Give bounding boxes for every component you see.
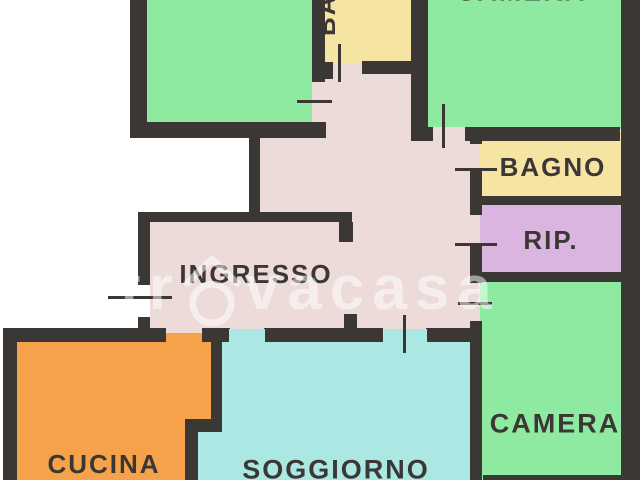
wall-segment bbox=[470, 128, 482, 144]
wall-segment bbox=[362, 61, 418, 74]
wall-segment bbox=[3, 328, 166, 342]
label-ingresso: INGRESSO bbox=[179, 261, 332, 287]
wall-segment bbox=[3, 328, 17, 480]
label-bagno-vertical: BAGNO bbox=[312, 0, 340, 36]
door-swing-line bbox=[297, 100, 332, 103]
door-swing-line bbox=[442, 104, 445, 148]
door-swing-line bbox=[458, 302, 492, 305]
wall-segment bbox=[470, 170, 482, 215]
wall-segment bbox=[470, 245, 482, 283]
wall-segment bbox=[482, 196, 621, 205]
floorplan: CAMERA BAGNO BAGNO RIP. INGRESSO CUCINA … bbox=[0, 0, 640, 480]
door-swing-line bbox=[455, 243, 497, 246]
wall-segment bbox=[419, 127, 433, 141]
room-soggiorno bbox=[196, 430, 226, 480]
wall-segment bbox=[211, 338, 222, 424]
label-camera-top: CAMERA bbox=[456, 0, 587, 6]
door-swing-line bbox=[403, 315, 406, 353]
wall-segment bbox=[465, 127, 620, 141]
door-opening bbox=[433, 127, 465, 141]
wall-segment bbox=[470, 321, 482, 480]
wall-segment bbox=[130, 0, 147, 138]
wall-segment bbox=[482, 272, 621, 282]
wall-segment bbox=[339, 222, 353, 242]
wall-segment bbox=[185, 419, 222, 432]
wall-segment bbox=[483, 475, 621, 480]
door-swing-line bbox=[455, 168, 497, 171]
wall-segment-outer-right bbox=[621, 0, 640, 480]
wall-segment bbox=[138, 212, 150, 285]
wall-segment bbox=[185, 432, 198, 480]
wall-segment bbox=[138, 212, 352, 222]
label-cucina: CUCINA bbox=[47, 451, 160, 477]
room-camera-bottom bbox=[480, 278, 623, 480]
label-rip: RIP. bbox=[523, 227, 578, 253]
wall-segment bbox=[130, 122, 326, 138]
wall-segment bbox=[411, 0, 428, 141]
room-camera-top bbox=[426, 0, 623, 130]
wall-segment bbox=[344, 314, 357, 330]
label-bagno: BAGNO bbox=[500, 154, 607, 180]
room-camera-top-left bbox=[145, 0, 315, 125]
label-camera-bottom: CAMERA bbox=[490, 411, 621, 438]
hallway-floor bbox=[255, 135, 482, 215]
door-swing-line bbox=[338, 44, 341, 82]
wall-segment bbox=[264, 328, 383, 342]
door-swing-line bbox=[108, 296, 172, 299]
wall-segment bbox=[249, 135, 260, 213]
wall-segment bbox=[426, 328, 476, 342]
label-soggiorno: SOGGIORNO bbox=[242, 457, 430, 480]
door-opening bbox=[229, 329, 265, 342]
wall-segment bbox=[312, 62, 333, 79]
